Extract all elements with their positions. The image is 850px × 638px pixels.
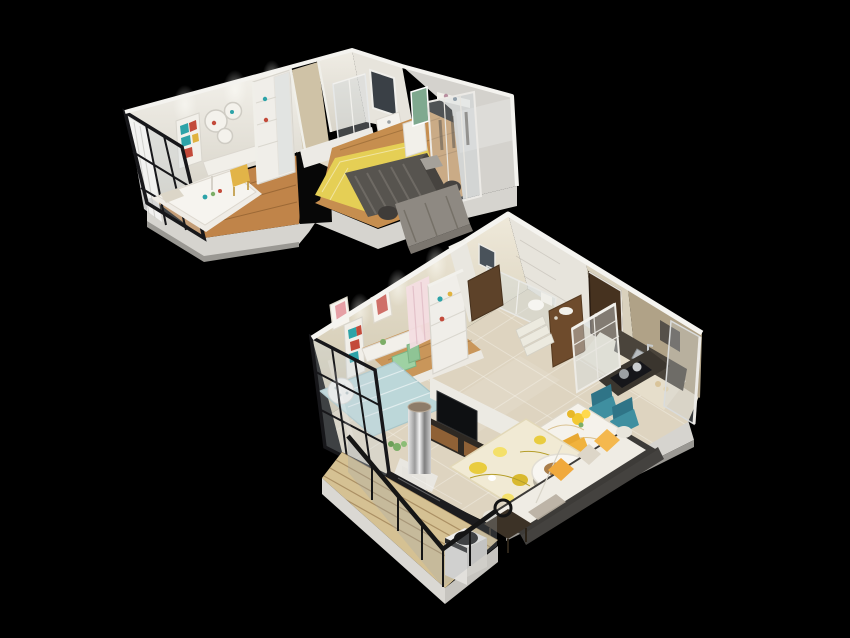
side-drum — [378, 206, 398, 220]
pot — [633, 363, 642, 372]
bed-deco-bottle — [218, 189, 222, 193]
round-shelf — [218, 129, 233, 144]
flower-bouquet — [582, 410, 591, 419]
flower-bouquet — [567, 410, 575, 418]
wardrobe-box — [437, 296, 442, 301]
bath-faucet — [387, 120, 391, 124]
vanity-mirror-green — [411, 87, 429, 126]
potted-plant — [393, 443, 401, 451]
potted-plant — [401, 441, 407, 447]
bed-deco-bottle — [211, 192, 215, 196]
sideboard-item — [554, 316, 558, 320]
bath-window — [370, 70, 397, 116]
sofa-armrest — [616, 426, 632, 438]
pot — [619, 369, 629, 379]
mirror-column-body — [408, 408, 431, 474]
wardrobe-box — [448, 292, 453, 297]
shelf-trinket — [230, 110, 234, 114]
food-bowl — [655, 381, 661, 387]
wardrobe-box — [440, 317, 445, 322]
floorplan-render — [0, 0, 850, 638]
render-stage — [0, 0, 850, 638]
vessel-sink — [559, 307, 573, 315]
wardrobe-item — [263, 97, 267, 101]
potted-plant — [388, 441, 394, 447]
wardrobe-item — [264, 118, 268, 122]
flower-leaf — [579, 423, 584, 428]
shelf-trinket — [212, 121, 216, 125]
bed-deco-bottle — [203, 195, 208, 200]
desk-plant — [380, 339, 386, 345]
mirror-column-cap — [408, 402, 431, 412]
